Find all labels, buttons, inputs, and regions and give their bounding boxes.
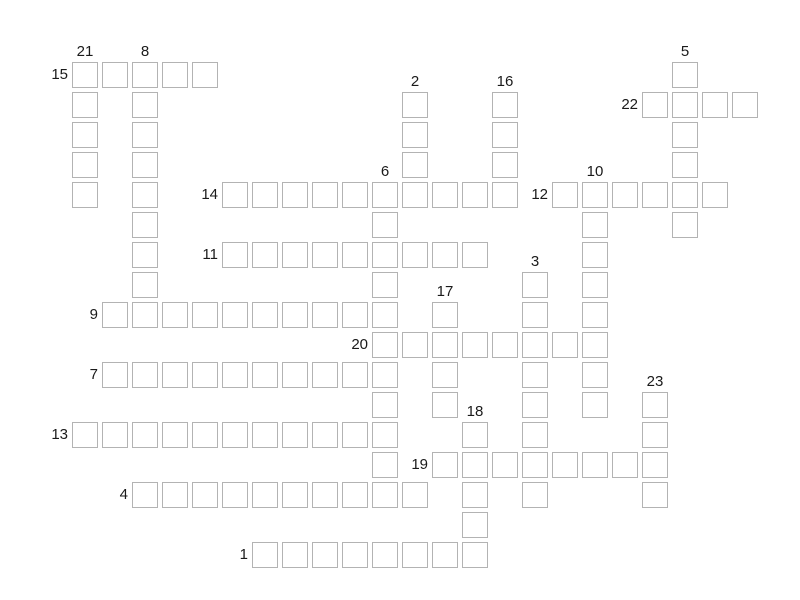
crossword-cell[interactable] bbox=[402, 482, 428, 508]
crossword-cell[interactable] bbox=[252, 542, 278, 568]
clue-number-label: 21 bbox=[65, 43, 105, 60]
crossword-cell[interactable] bbox=[552, 452, 578, 478]
crossword-cell[interactable] bbox=[582, 212, 608, 238]
crossword-cell[interactable] bbox=[132, 152, 158, 178]
crossword-cell[interactable] bbox=[462, 242, 488, 268]
crossword-cell[interactable] bbox=[372, 182, 398, 208]
crossword-cell[interactable] bbox=[372, 242, 398, 268]
clue-number-label: 16 bbox=[485, 73, 525, 90]
crossword-cell[interactable] bbox=[312, 182, 338, 208]
crossword-cell[interactable] bbox=[312, 302, 338, 328]
crossword-cell[interactable] bbox=[312, 482, 338, 508]
crossword-cell[interactable] bbox=[642, 92, 668, 118]
crossword-cell[interactable] bbox=[522, 272, 548, 298]
clue-number-label: 12 bbox=[510, 182, 548, 208]
crossword-cell[interactable] bbox=[192, 62, 218, 88]
crossword-cell[interactable] bbox=[702, 92, 728, 118]
clue-number-label: 19 bbox=[390, 452, 428, 478]
crossword-cell[interactable] bbox=[72, 182, 98, 208]
clue-number-label: 10 bbox=[575, 163, 615, 180]
clue-number-label: 13 bbox=[30, 422, 68, 448]
crossword-cell[interactable] bbox=[462, 332, 488, 358]
crossword-cell[interactable] bbox=[132, 362, 158, 388]
crossword-cell[interactable] bbox=[672, 212, 698, 238]
crossword-cell[interactable] bbox=[252, 362, 278, 388]
crossword-cell[interactable] bbox=[522, 302, 548, 328]
crossword-cell[interactable] bbox=[372, 212, 398, 238]
crossword-cell[interactable] bbox=[372, 392, 398, 418]
crossword-cell[interactable] bbox=[432, 362, 458, 388]
crossword-cell[interactable] bbox=[672, 182, 698, 208]
crossword-cell[interactable] bbox=[552, 332, 578, 358]
crossword-cell[interactable] bbox=[282, 182, 308, 208]
crossword-cell[interactable] bbox=[402, 92, 428, 118]
crossword-cell[interactable] bbox=[372, 482, 398, 508]
crossword-cell[interactable] bbox=[612, 452, 638, 478]
crossword-cell[interactable] bbox=[342, 362, 368, 388]
crossword-cell[interactable] bbox=[642, 422, 668, 448]
crossword-cell[interactable] bbox=[522, 482, 548, 508]
crossword-cell[interactable] bbox=[372, 332, 398, 358]
crossword-cell[interactable] bbox=[102, 62, 128, 88]
crossword-cell[interactable] bbox=[132, 242, 158, 268]
crossword-cell[interactable] bbox=[132, 212, 158, 238]
crossword-cell[interactable] bbox=[492, 452, 518, 478]
crossword-cell[interactable] bbox=[342, 542, 368, 568]
crossword-cell[interactable] bbox=[582, 332, 608, 358]
crossword-cell[interactable] bbox=[372, 542, 398, 568]
crossword-cell[interactable] bbox=[492, 92, 518, 118]
crossword-cell[interactable] bbox=[162, 362, 188, 388]
clue-number-label: 7 bbox=[60, 362, 98, 388]
crossword-cell[interactable] bbox=[102, 422, 128, 448]
crossword-cell[interactable] bbox=[672, 152, 698, 178]
clue-number-label: 3 bbox=[515, 253, 555, 270]
crossword-cell[interactable] bbox=[372, 302, 398, 328]
crossword-cell[interactable] bbox=[252, 242, 278, 268]
crossword-cell[interactable] bbox=[282, 302, 308, 328]
crossword-cell[interactable] bbox=[402, 242, 428, 268]
crossword-cell[interactable] bbox=[462, 542, 488, 568]
crossword-cell[interactable] bbox=[732, 92, 758, 118]
crossword-cell[interactable] bbox=[252, 302, 278, 328]
crossword-cell[interactable] bbox=[582, 182, 608, 208]
crossword-cell[interactable] bbox=[222, 302, 248, 328]
crossword-cell[interactable] bbox=[342, 302, 368, 328]
crossword-cell[interactable] bbox=[522, 332, 548, 358]
crossword-cell[interactable] bbox=[432, 542, 458, 568]
crossword-cell[interactable] bbox=[432, 242, 458, 268]
crossword-cell[interactable] bbox=[252, 482, 278, 508]
crossword-cell[interactable] bbox=[222, 182, 248, 208]
crossword-cell[interactable] bbox=[492, 122, 518, 148]
crossword-cell[interactable] bbox=[522, 422, 548, 448]
crossword-cell[interactable] bbox=[132, 482, 158, 508]
crossword-cell[interactable] bbox=[192, 482, 218, 508]
crossword-cell[interactable] bbox=[282, 242, 308, 268]
crossword-cell[interactable] bbox=[372, 362, 398, 388]
crossword-cell[interactable] bbox=[462, 422, 488, 448]
crossword-cell[interactable] bbox=[672, 122, 698, 148]
crossword-cell[interactable] bbox=[72, 122, 98, 148]
clue-number-label: 22 bbox=[600, 92, 638, 118]
clue-number-label: 15 bbox=[30, 62, 68, 88]
crossword-cell[interactable] bbox=[462, 512, 488, 538]
crossword-cell[interactable] bbox=[642, 182, 668, 208]
clue-number-label: 11 bbox=[180, 242, 218, 268]
clue-number-label: 23 bbox=[635, 373, 675, 390]
crossword-cell[interactable] bbox=[312, 422, 338, 448]
crossword-cell[interactable] bbox=[582, 362, 608, 388]
crossword-cell[interactable] bbox=[522, 362, 548, 388]
crossword-cell[interactable] bbox=[432, 182, 458, 208]
crossword-cell[interactable] bbox=[432, 332, 458, 358]
crossword-cell[interactable] bbox=[312, 242, 338, 268]
clue-number-label: 14 bbox=[180, 182, 218, 208]
crossword-cell[interactable] bbox=[372, 422, 398, 448]
crossword-cell[interactable] bbox=[312, 542, 338, 568]
clue-number-label: 20 bbox=[330, 332, 368, 358]
crossword-cell[interactable] bbox=[342, 482, 368, 508]
crossword-cell[interactable] bbox=[282, 362, 308, 388]
clue-number-label: 2 bbox=[395, 73, 435, 90]
crossword-cell[interactable] bbox=[462, 182, 488, 208]
crossword-cell[interactable] bbox=[402, 332, 428, 358]
crossword-cell[interactable] bbox=[102, 302, 128, 328]
crossword-cell[interactable] bbox=[252, 182, 278, 208]
crossword-cell[interactable] bbox=[222, 422, 248, 448]
crossword-cell[interactable] bbox=[642, 452, 668, 478]
crossword-cell[interactable] bbox=[702, 182, 728, 208]
crossword-cell[interactable] bbox=[462, 482, 488, 508]
crossword-cell[interactable] bbox=[342, 242, 368, 268]
crossword-cell[interactable] bbox=[492, 152, 518, 178]
crossword-cell[interactable] bbox=[402, 122, 428, 148]
crossword-cell[interactable] bbox=[102, 362, 128, 388]
crossword-cell[interactable] bbox=[642, 482, 668, 508]
clue-number-label: 1 bbox=[210, 542, 248, 568]
crossword-cell[interactable] bbox=[582, 242, 608, 268]
crossword-cell[interactable] bbox=[402, 152, 428, 178]
crossword-cell[interactable] bbox=[132, 182, 158, 208]
clue-number-label: 4 bbox=[90, 482, 128, 508]
crossword-cell[interactable] bbox=[372, 272, 398, 298]
crossword-grid: 1234567891011121314151617181920212223 bbox=[0, 0, 800, 600]
crossword-cell[interactable] bbox=[312, 362, 338, 388]
crossword-cell[interactable] bbox=[612, 182, 638, 208]
crossword-cell[interactable] bbox=[192, 422, 218, 448]
crossword-cell[interactable] bbox=[672, 92, 698, 118]
crossword-cell[interactable] bbox=[282, 482, 308, 508]
crossword-cell[interactable] bbox=[132, 302, 158, 328]
crossword-cell[interactable] bbox=[522, 452, 548, 478]
crossword-cell[interactable] bbox=[432, 302, 458, 328]
crossword-cell[interactable] bbox=[162, 422, 188, 448]
crossword-cell[interactable] bbox=[582, 302, 608, 328]
crossword-cell[interactable] bbox=[162, 62, 188, 88]
crossword-cell[interactable] bbox=[132, 272, 158, 298]
crossword-cell[interactable] bbox=[192, 362, 218, 388]
crossword-cell[interactable] bbox=[132, 92, 158, 118]
crossword-cell[interactable] bbox=[132, 422, 158, 448]
clue-number-label: 5 bbox=[665, 43, 705, 60]
crossword-cell[interactable] bbox=[462, 452, 488, 478]
crossword-cell[interactable] bbox=[342, 422, 368, 448]
crossword-cell[interactable] bbox=[72, 422, 98, 448]
crossword-cell[interactable] bbox=[192, 302, 218, 328]
crossword-cell[interactable] bbox=[582, 392, 608, 418]
crossword-cell[interactable] bbox=[492, 332, 518, 358]
crossword-cell[interactable] bbox=[222, 482, 248, 508]
crossword-cell[interactable] bbox=[522, 392, 548, 418]
crossword-cell[interactable] bbox=[672, 62, 698, 88]
crossword-cell[interactable] bbox=[132, 122, 158, 148]
crossword-cell[interactable] bbox=[282, 542, 308, 568]
crossword-cell[interactable] bbox=[132, 62, 158, 88]
crossword-cell[interactable] bbox=[582, 452, 608, 478]
crossword-cell[interactable] bbox=[432, 452, 458, 478]
clue-number-label: 6 bbox=[365, 163, 405, 180]
clue-number-label: 18 bbox=[455, 403, 495, 420]
crossword-cell[interactable] bbox=[552, 182, 578, 208]
crossword-cell[interactable] bbox=[402, 542, 428, 568]
crossword-cell[interactable] bbox=[342, 182, 368, 208]
crossword-cell[interactable] bbox=[162, 302, 188, 328]
crossword-cell[interactable] bbox=[582, 272, 608, 298]
crossword-cell[interactable] bbox=[402, 182, 428, 208]
clue-number-label: 8 bbox=[125, 43, 165, 60]
crossword-cell[interactable] bbox=[72, 152, 98, 178]
clue-number-label: 9 bbox=[60, 302, 98, 328]
crossword-cell[interactable] bbox=[162, 482, 188, 508]
crossword-cell[interactable] bbox=[252, 422, 278, 448]
crossword-cell[interactable] bbox=[72, 62, 98, 88]
crossword-cell[interactable] bbox=[222, 242, 248, 268]
crossword-cell[interactable] bbox=[282, 422, 308, 448]
clue-number-label: 17 bbox=[425, 283, 465, 300]
crossword-cell[interactable] bbox=[72, 92, 98, 118]
crossword-cell[interactable] bbox=[222, 362, 248, 388]
crossword-cell[interactable] bbox=[642, 392, 668, 418]
